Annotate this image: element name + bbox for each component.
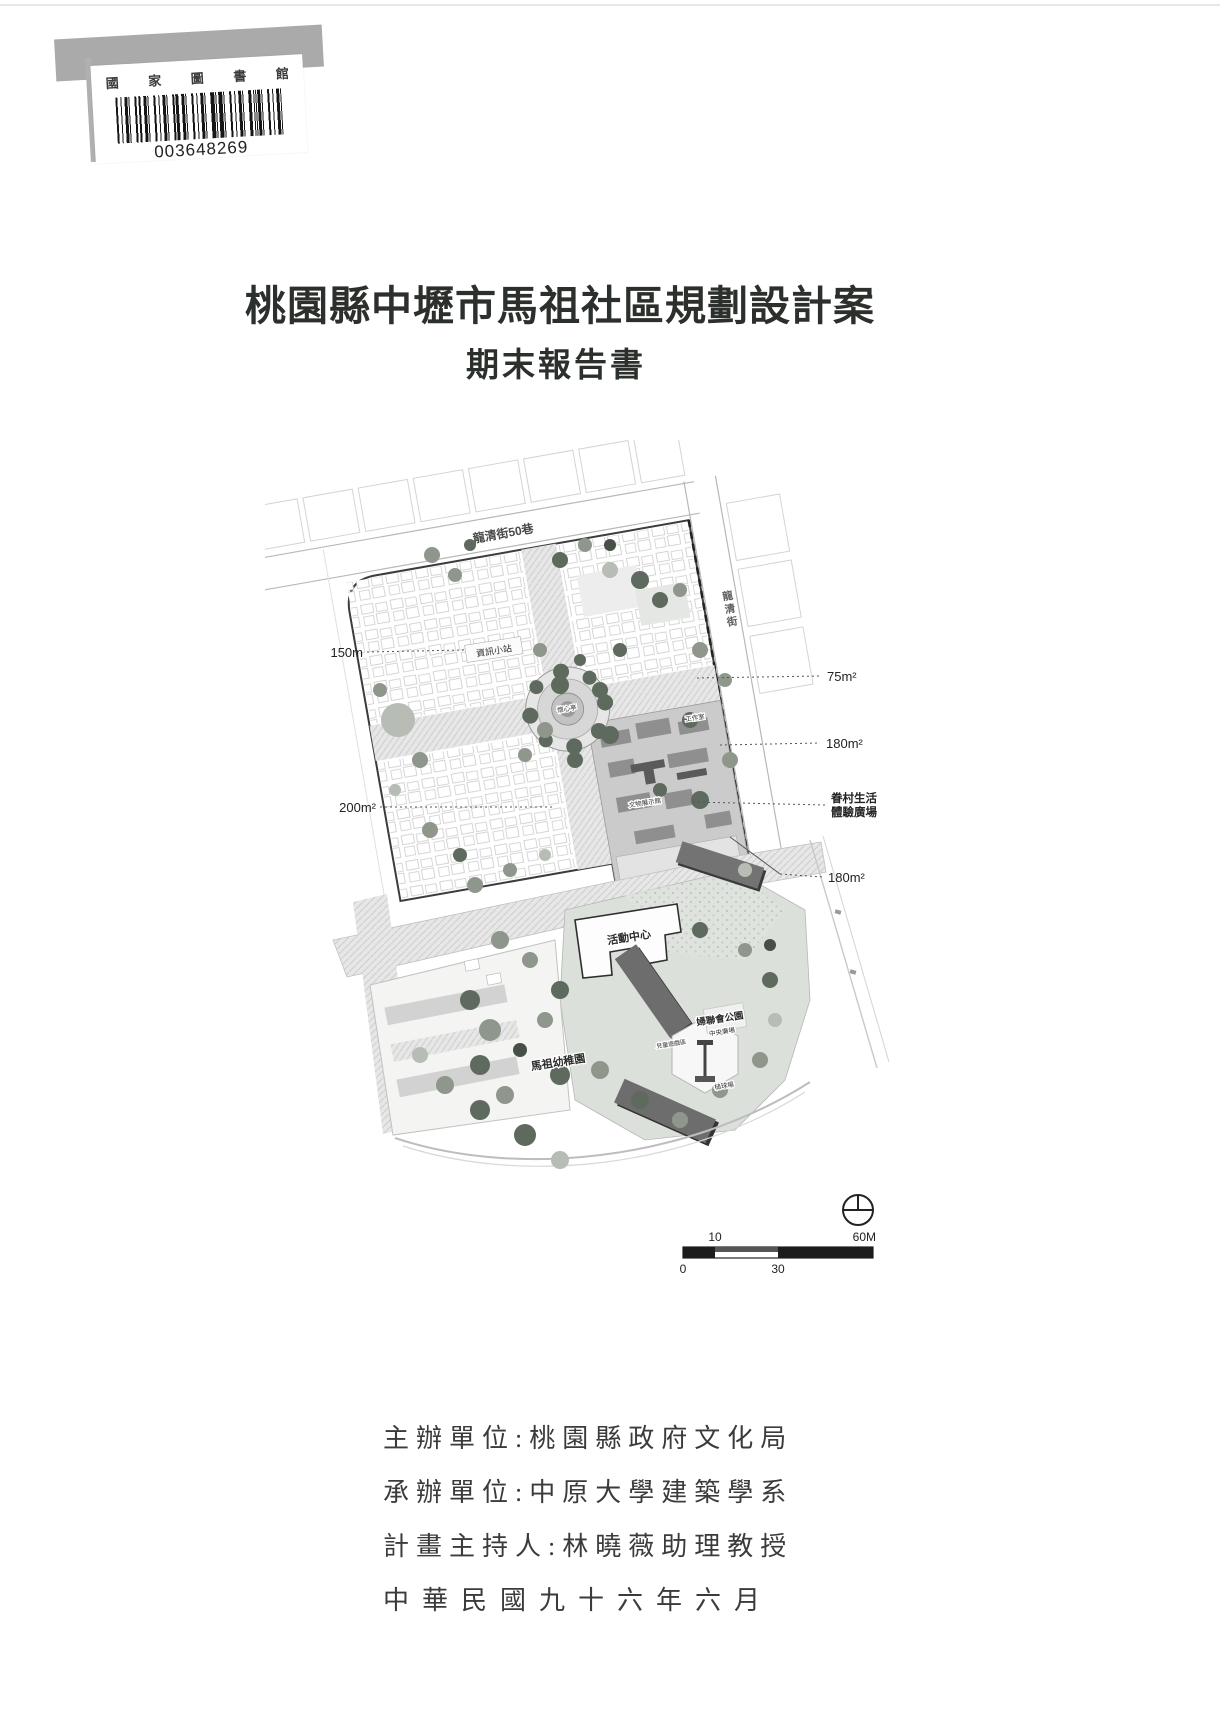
credit-director: 計畫主持人:林曉薇助理教授 bbox=[383, 1526, 793, 1563]
credit-date: 中華民國九十六年六月 bbox=[383, 1580, 773, 1617]
credit-contractor: 承辦單位:中原大學建築學系 bbox=[383, 1472, 793, 1509]
callout-200m2: 200m² bbox=[339, 800, 377, 815]
callout-plaza-line1: 眷村生活 bbox=[830, 791, 877, 805]
credit-organizer: 主辦單位:桃園縣政府文化局 bbox=[383, 1418, 793, 1455]
scale-bar: 10 60M 0 30 bbox=[680, 1230, 876, 1275]
callout-150m: 150m bbox=[330, 645, 363, 660]
scale-60m: 60M bbox=[853, 1230, 876, 1244]
site-plan-figure: 龍清街50巷 龍 清 街 bbox=[265, 440, 895, 1275]
scale-10: 10 bbox=[708, 1230, 722, 1244]
library-sticker: 國 家 圖 書 館 003648269 bbox=[90, 54, 307, 164]
scan-edge-artifact bbox=[0, 4, 1220, 6]
callout-plaza-line2: 體驗廣場 bbox=[831, 805, 877, 819]
north-symbol-icon bbox=[843, 1195, 873, 1225]
callout-180m2-a: 180m² bbox=[826, 736, 864, 751]
callout-180m2-b: 180m² bbox=[828, 870, 866, 885]
report-cover-page: 國 家 圖 書 館 003648269 桃園縣中壢市馬祖社區規劃設計案 期末報告… bbox=[0, 0, 1220, 1723]
report-title: 桃園縣中壢市馬祖社區規劃設計案 bbox=[0, 272, 1120, 332]
report-subtitle: 期末報告書 bbox=[0, 338, 1112, 386]
callout-75m2: 75m² bbox=[827, 669, 857, 684]
scale-30: 30 bbox=[771, 1262, 785, 1275]
barcode-icon bbox=[115, 88, 283, 143]
scale-0: 0 bbox=[680, 1262, 687, 1275]
kindergarten-block bbox=[370, 940, 570, 1135]
street-label-top: 龍清街50巷 bbox=[472, 520, 536, 546]
